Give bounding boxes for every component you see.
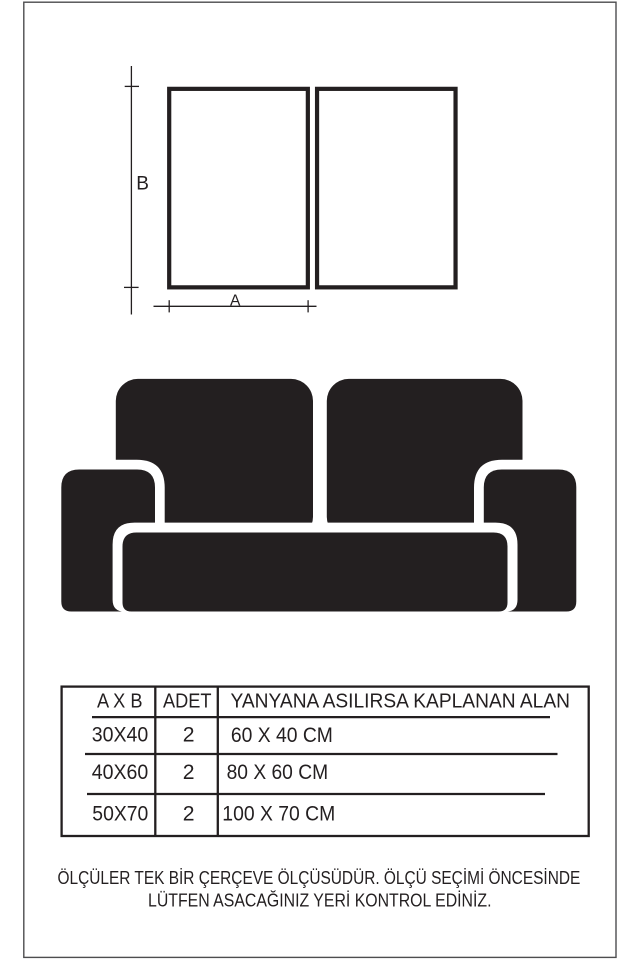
svg-text:A: A (230, 292, 241, 309)
svg-text:LÜTFEN ASACAĞINIZ YERİ KONTROL: LÜTFEN ASACAĞINIZ YERİ KONTROL EDİNİZ. (148, 889, 492, 910)
svg-text:A X B: A X B (97, 691, 143, 713)
svg-text:80 X 60 CM: 80 X 60 CM (227, 761, 329, 784)
svg-text:30X40: 30X40 (92, 724, 149, 747)
svg-text:ADET: ADET (163, 691, 212, 713)
svg-text:ÖLÇÜLER TEK BİR ÇERÇEVE ÖLÇÜSÜ: ÖLÇÜLER TEK BİR ÇERÇEVE ÖLÇÜSÜDÜR. ÖLÇÜ … (58, 867, 581, 888)
svg-text:50X70: 50X70 (92, 803, 148, 826)
svg-text:40X60: 40X60 (92, 761, 149, 784)
svg-text:2: 2 (183, 803, 195, 826)
svg-text:YANYANA ASILIRSA KAPLANAN ALAN: YANYANA ASILIRSA KAPLANAN ALAN (231, 691, 571, 713)
svg-text:2: 2 (183, 761, 195, 784)
svg-text:100 X 70 CM: 100 X 70 CM (222, 803, 335, 826)
svg-text:60 X 40 CM: 60 X 40 CM (231, 724, 333, 747)
svg-text:2: 2 (183, 724, 195, 747)
svg-text:B: B (136, 173, 149, 194)
